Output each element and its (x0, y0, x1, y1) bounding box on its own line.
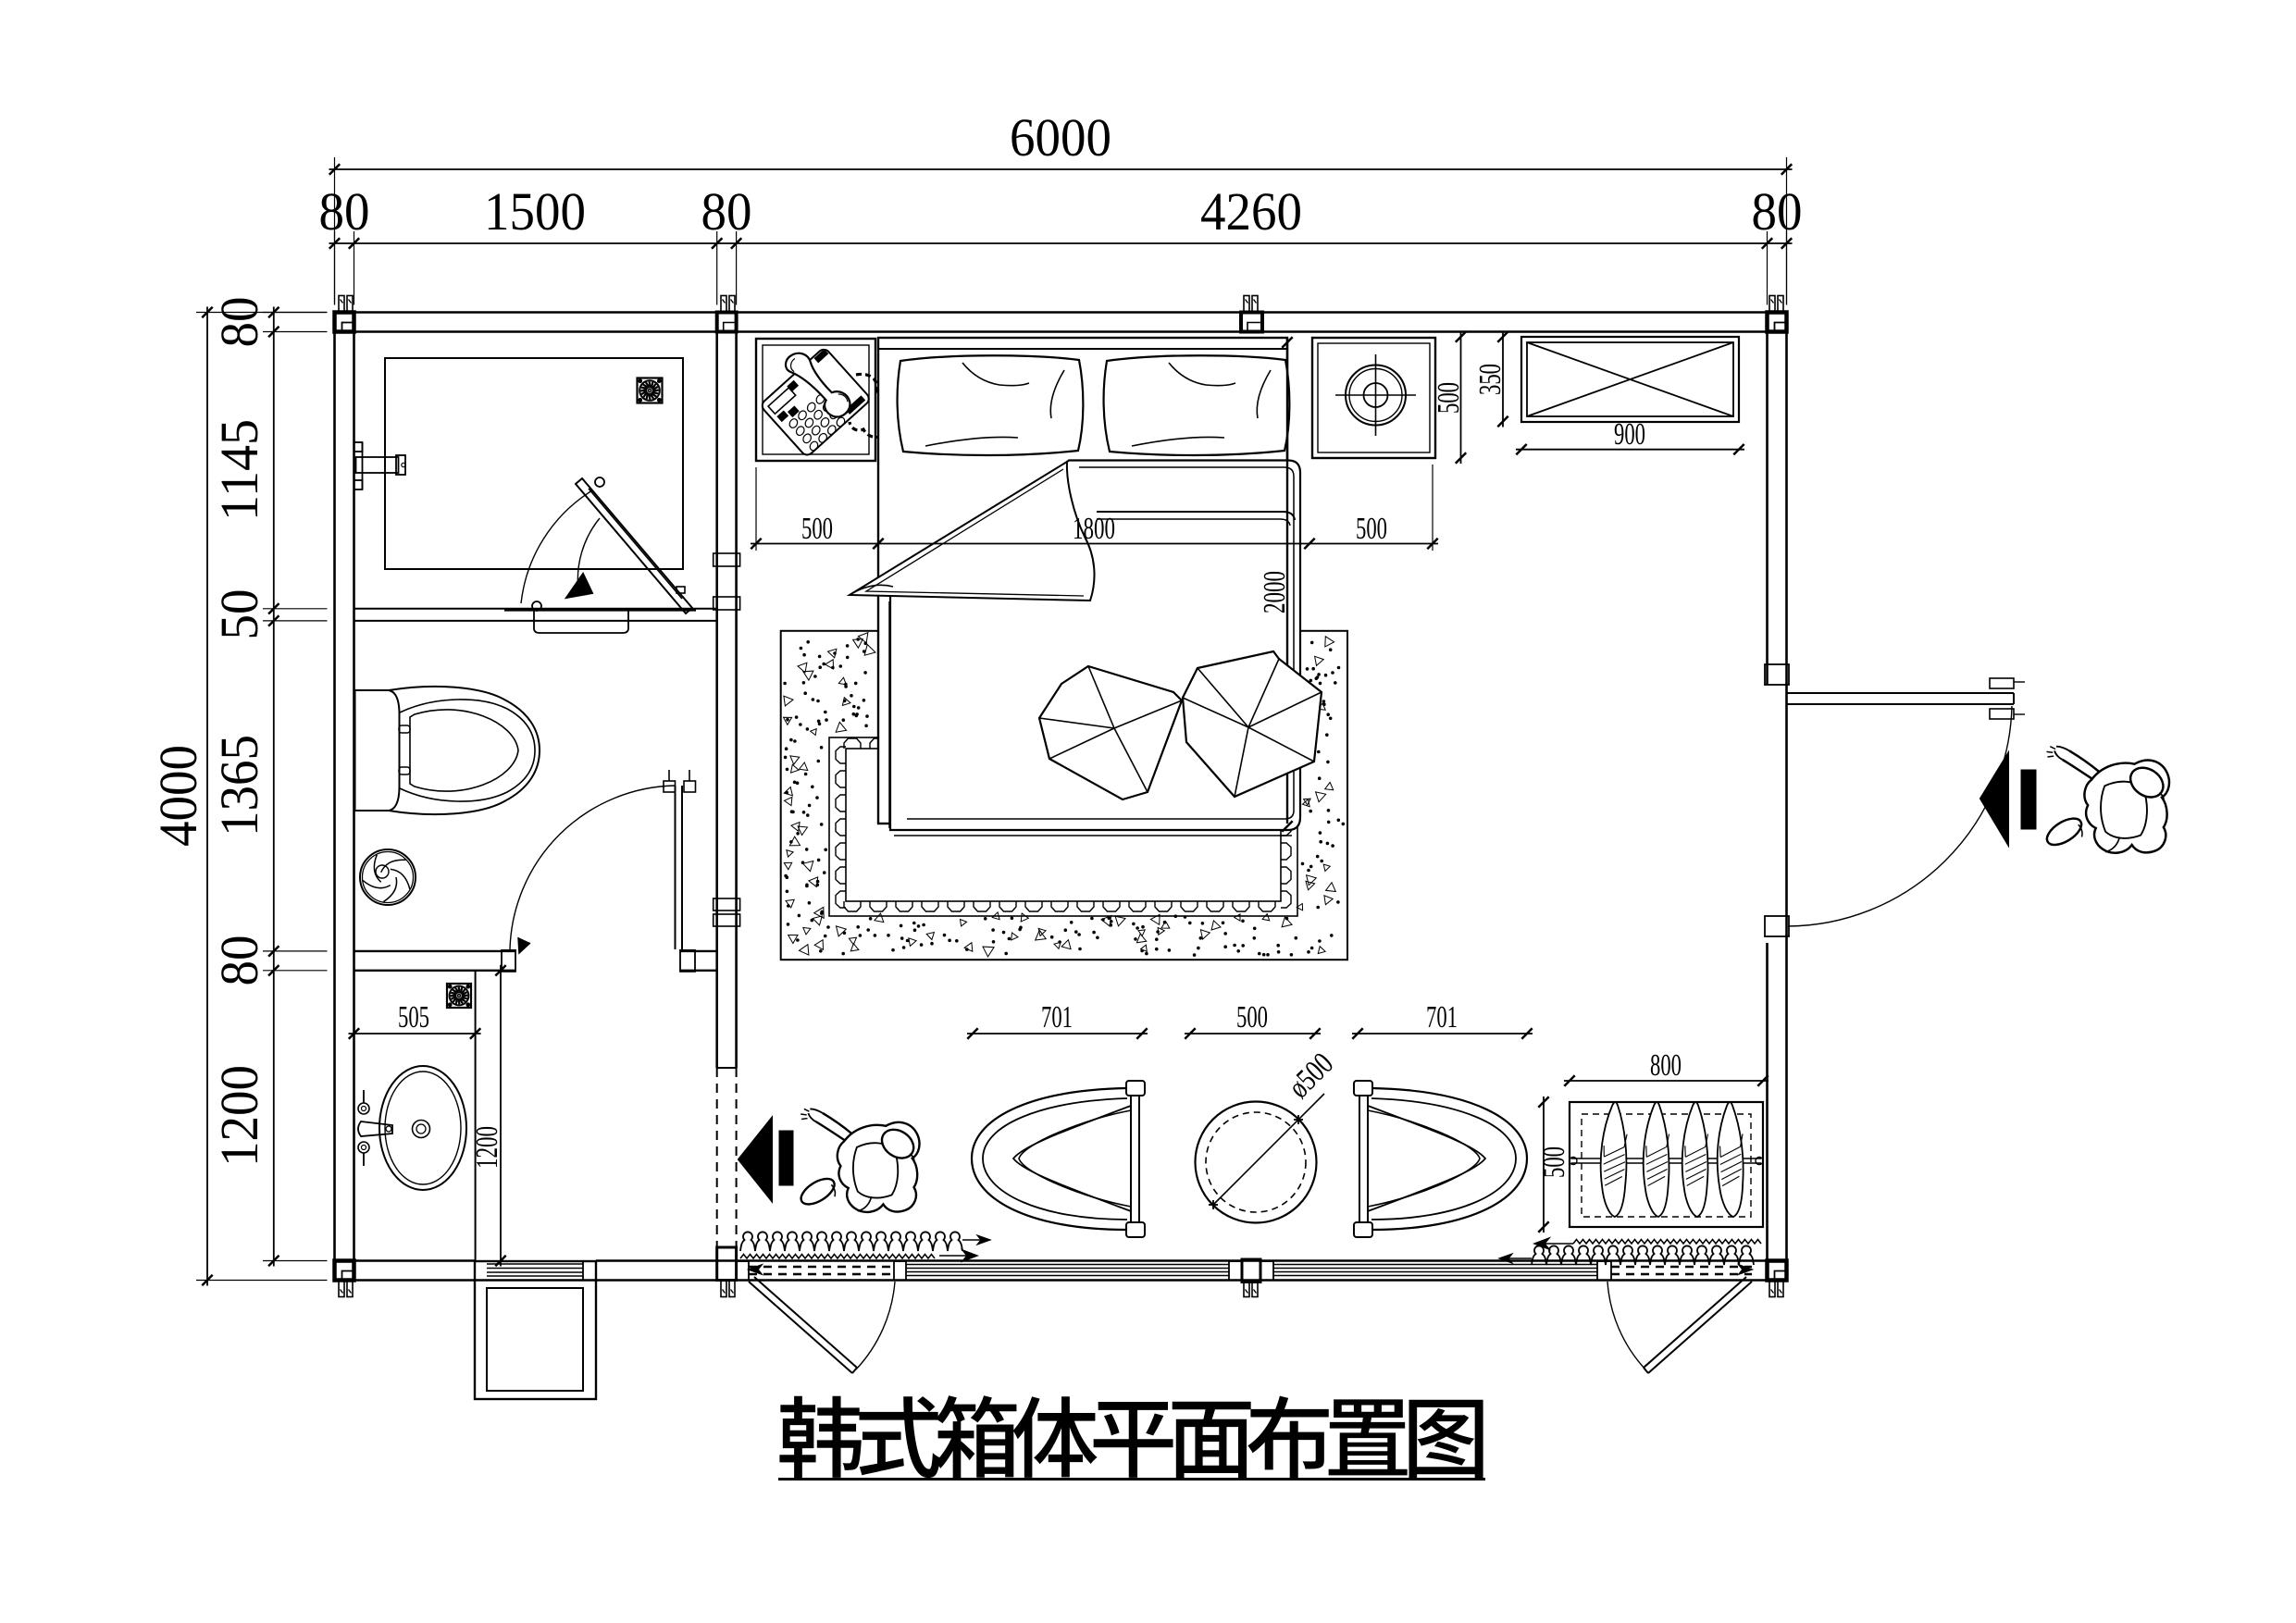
svg-text:1145: 1145 (209, 419, 269, 521)
svg-text:701: 701 (1426, 1000, 1458, 1035)
svg-text:80: 80 (209, 297, 269, 348)
svg-text:800: 800 (1650, 1048, 1682, 1083)
svg-text:1200: 1200 (209, 1065, 269, 1167)
svg-text:500: 500 (1236, 1000, 1268, 1035)
svg-text:1500: 1500 (484, 181, 586, 242)
svg-text:4000: 4000 (148, 745, 208, 847)
svg-text:350: 350 (1473, 364, 1508, 395)
svg-text:701: 701 (1041, 1000, 1073, 1035)
svg-text:1200: 1200 (470, 1126, 504, 1169)
svg-text:500: 500 (1356, 512, 1387, 546)
svg-text:80: 80 (209, 935, 269, 986)
svg-text:500: 500 (801, 512, 833, 546)
svg-text:505: 505 (398, 1000, 429, 1035)
svg-text:6000: 6000 (1010, 107, 1111, 167)
svg-text:80: 80 (319, 181, 370, 242)
svg-text:4260: 4260 (1200, 181, 1302, 242)
svg-text:500: 500 (1432, 382, 1466, 414)
svg-text:80: 80 (1752, 181, 1803, 242)
svg-text:1365: 1365 (209, 735, 269, 836)
svg-text:2000: 2000 (1258, 571, 1292, 613)
svg-text:80: 80 (701, 181, 752, 242)
svg-text:1800: 1800 (1073, 512, 1115, 546)
svg-text:50: 50 (209, 589, 269, 640)
svg-text:500: 500 (1537, 1146, 1571, 1178)
svg-text:900: 900 (1614, 417, 1645, 452)
